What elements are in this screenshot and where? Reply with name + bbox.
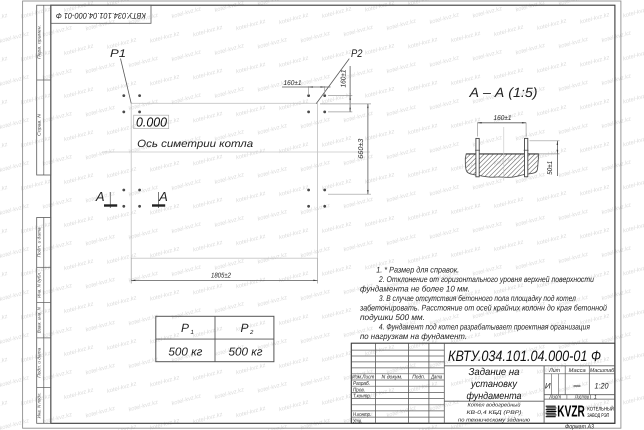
svg-text:kotel-kvz.kz: kotel-kvz.kz [214, 171, 245, 186]
svg-text:kotel-kvz.kz: kotel-kvz.kz [20, 6, 51, 21]
svg-text:kotel-kvz.kz: kotel-kvz.kz [579, 11, 610, 26]
svg-text:kotel-kvz.kz: kotel-kvz.kz [0, 245, 30, 260]
svg-text:kotel-kvz.kz: kotel-kvz.kz [192, 110, 223, 125]
svg-text:kotel-kvz.kz: kotel-kvz.kz [63, 387, 94, 402]
svg-text:kotel-kvz.kz: kotel-kvz.kz [278, 184, 309, 199]
svg-text:kotel-kvz.kz: kotel-kvz.kz [171, 264, 202, 279]
svg-text:kotel-kvz.kz: kotel-kvz.kz [63, 129, 94, 144]
svg-text:по техническому заданию: по техническому заданию [458, 418, 530, 424]
svg-text:P1: P1 [110, 48, 126, 60]
svg-text:ЗАВОД РЭП: ЗАВОД РЭП [587, 413, 609, 419]
svg-text:kotel-kvz.kz: kotel-kvz.kz [42, 325, 73, 340]
svg-text:kotel-kvz.kz: kotel-kvz.kz [0, 270, 8, 285]
svg-text:kotel-kvz.kz: kotel-kvz.kz [235, 104, 266, 119]
svg-text:kotel-kvz.kz: kotel-kvz.kz [450, 116, 481, 131]
svg-text:kotel-kvz.kz: kotel-kvz.kz [106, 251, 137, 266]
svg-text:kotel-kvz.kz: kotel-kvz.kz [0, 202, 30, 217]
svg-text:kotel-kvz.kz: kotel-kvz.kz [300, 116, 331, 131]
svg-text:kotel-kvz.kz: kotel-kvz.kz [20, 178, 51, 193]
svg-text:660±3: 660±3 [358, 139, 365, 159]
svg-text:kotel-kvz.kz: kotel-kvz.kz [106, 79, 137, 94]
svg-text:kotel-kvz.kz: kotel-kvz.kz [601, 288, 632, 303]
svg-text:kotel-kvz.kz: kotel-kvz.kz [0, 313, 8, 328]
svg-text:kotel-kvz.kz: kotel-kvz.kz [364, 42, 395, 57]
svg-text:kotel-kvz.kz: kotel-kvz.kz [257, 122, 288, 137]
svg-text:kotel-kvz.kz: kotel-kvz.kz [0, 356, 8, 371]
svg-text:А – А (1:5): А – А (1:5) [468, 85, 537, 100]
svg-text:kotel-kvz.kz: kotel-kvz.kz [257, 380, 288, 395]
svg-text:kotel-kvz.kz: kotel-kvz.kz [128, 399, 159, 414]
svg-text:kotel-kvz.kz: kotel-kvz.kz [257, 165, 288, 180]
svg-text:50±1: 50±1 [547, 161, 554, 175]
svg-text:КОТЕЛЬНЫЙ: КОТЕЛЬНЫЙ [587, 406, 614, 413]
svg-text:kotel-kvz.kz: kotel-kvz.kz [472, 220, 503, 235]
svg-text:kotel-kvz.kz: kotel-kvz.kz [42, 239, 73, 254]
svg-text:kotel-kvz.kz: kotel-kvz.kz [558, 79, 589, 94]
svg-text:kotel-kvz.kz: kotel-kvz.kz [386, 233, 417, 248]
svg-text:kotel-kvz.kz: kotel-kvz.kz [472, 5, 503, 20]
svg-text:kotel-kvz.kz: kotel-kvz.kz [558, 36, 589, 51]
svg-text:kotel-kvz.kz: kotel-kvz.kz [106, 294, 137, 309]
svg-text:kotel-kvz.kz: kotel-kvz.kz [42, 196, 73, 211]
svg-text:kotel-kvz.kz: kotel-kvz.kz [106, 165, 137, 180]
svg-text:kotel-kvz.kz: kotel-kvz.kz [300, 374, 331, 389]
svg-text:kotel-kvz.kz: kotel-kvz.kz [0, 30, 30, 45]
svg-text:Р: Р [181, 321, 189, 335]
svg-text:kotel-kvz.kz: kotel-kvz.kz [214, 85, 245, 100]
svg-text:kotel-kvz.kz: kotel-kvz.kz [558, 380, 589, 395]
svg-text:kotel-kvz.kz: kotel-kvz.kz [622, 48, 644, 63]
svg-text:1805±2: 1805±2 [211, 273, 231, 280]
svg-text:kotel-kvz.kz: kotel-kvz.kz [407, 122, 438, 137]
svg-text:kotel-kvz.kz: kotel-kvz.kz [536, 17, 567, 32]
svg-text:Инв. N подл.: Инв. N подл. [36, 392, 41, 418]
svg-text:kotel-kvz.kz: kotel-kvz.kz [106, 122, 137, 137]
svg-text:kotel-kvz.kz: kotel-kvz.kz [364, 171, 395, 186]
svg-text:0.000: 0.000 [136, 115, 168, 130]
svg-text:kotel-kvz.kz: kotel-kvz.kz [407, 208, 438, 223]
svg-text:1: 1 [594, 394, 597, 400]
svg-text:kotel-kvz.kz: kotel-kvz.kz [0, 55, 8, 70]
svg-text:KVZR: KVZR [557, 404, 585, 421]
svg-text:kotel-kvz.kz: kotel-kvz.kz [536, 103, 567, 118]
svg-text:kotel-kvz.kz: kotel-kvz.kz [622, 134, 644, 149]
svg-text:kotel-kvz.kz: kotel-kvz.kz [300, 288, 331, 303]
svg-text:kotel-kvz.kz: kotel-kvz.kz [42, 282, 73, 297]
svg-text:Масштаб: Масштаб [590, 367, 615, 374]
svg-text:kotel-kvz.kz: kotel-kvz.kz [343, 67, 374, 82]
svg-text:kotel-kvz.kz: kotel-kvz.kz [0, 374, 30, 389]
svg-text:160±1: 160±1 [340, 69, 347, 87]
svg-text:kotel-kvz.kz: kotel-kvz.kz [343, 196, 374, 211]
svg-text:kotel-kvz.kz: kotel-kvz.kz [321, 263, 352, 278]
svg-text:kotel-kvz.kz: kotel-kvz.kz [235, 276, 266, 291]
svg-text:kotel-kvz.kz: kotel-kvz.kz [300, 245, 331, 260]
svg-text:КВТУ.034.101.04.000-01 Ф: КВТУ.034.101.04.000-01 Ф [448, 348, 601, 365]
svg-text:kotel-kvz.kz: kotel-kvz.kz [300, 30, 331, 45]
svg-text:2: 2 [249, 329, 254, 336]
svg-text:kotel-kvz.kz: kotel-kvz.kz [450, 202, 481, 217]
svg-text:kotel-kvz.kz: kotel-kvz.kz [321, 5, 352, 20]
svg-text:kotel-kvz.kz: kotel-kvz.kz [429, 140, 460, 155]
svg-text:kotel-kvz.kz: kotel-kvz.kz [42, 24, 73, 39]
svg-text:kotel-kvz.kz: kotel-kvz.kz [515, 171, 546, 186]
svg-text:kotel-kvz.kz: kotel-kvz.kz [429, 54, 460, 69]
svg-text:kotel-kvz.kz: kotel-kvz.kz [622, 220, 644, 235]
svg-text:забетонировать. Расстояние от: забетонировать. Расстояние от осей крайн… [359, 304, 607, 313]
svg-text:kotel-kvz.kz: kotel-kvz.kz [601, 159, 632, 174]
svg-text:kotel-kvz.kz: kotel-kvz.kz [149, 245, 180, 260]
svg-text:Пров.: Пров. [353, 387, 365, 393]
svg-text:КВ-0,4 КБД (РВР): КВ-0,4 КБД (РВР) [467, 410, 522, 416]
svg-text:kotel-kvz.kz: kotel-kvz.kz [558, 251, 589, 266]
svg-text:Подп. и дата: Подп. и дата [36, 227, 41, 258]
svg-text:kotel-kvz.kz: kotel-kvz.kz [278, 399, 309, 414]
svg-text:2. Отклонение от горизонтально: 2. Отклонение от горизонтального уровня … [378, 275, 594, 284]
svg-text:kotel-kvz.kz: kotel-kvz.kz [63, 258, 94, 273]
svg-text:Изм.Лист: Изм.Лист [352, 374, 374, 380]
svg-text:kotel-kvz.kz: kotel-kvz.kz [128, 184, 159, 199]
svg-text:kotel-kvz.kz: kotel-kvz.kz [579, 183, 610, 198]
svg-text:kotel-kvz.kz: kotel-kvz.kz [579, 226, 610, 241]
svg-text:kotel-kvz.kz: kotel-kvz.kz [63, 86, 94, 101]
svg-text:kotel-kvz.kz: kotel-kvz.kz [321, 134, 352, 149]
svg-text:kotel-kvz.kz: kotel-kvz.kz [128, 270, 159, 285]
svg-text:kotel-kvz.kz: kotel-kvz.kz [0, 399, 8, 414]
svg-text:kotel-kvz.kz: kotel-kvz.kz [149, 159, 180, 174]
svg-text:kotel-kvz.kz: kotel-kvz.kz [171, 178, 202, 193]
svg-text:kotel-kvz.kz: kotel-kvz.kz [278, 356, 309, 371]
svg-text:kotel-kvz.kz: kotel-kvz.kz [429, 226, 460, 241]
svg-text:Р: Р [241, 321, 249, 335]
svg-text:kotel-kvz.kz: kotel-kvz.kz [235, 233, 266, 248]
svg-text:kotel-kvz.kz: kotel-kvz.kz [278, 12, 309, 27]
svg-text:kotel-kvz.kz: kotel-kvz.kz [0, 288, 30, 303]
svg-text:Котел водогрейный: Котел водогрейный [468, 403, 521, 409]
svg-text:kotel-kvz.kz: kotel-kvz.kz [63, 43, 94, 58]
svg-text:kotel-kvz.kz: kotel-kvz.kz [493, 196, 524, 211]
svg-text:Разраб.: Разраб. [353, 381, 370, 387]
svg-text:kotel-kvz.kz: kotel-kvz.kz [278, 227, 309, 242]
svg-text:kotel-kvz.kz: kotel-kvz.kz [558, 165, 589, 180]
svg-text:160±1: 160±1 [494, 115, 512, 122]
svg-text:kotel-kvz.kz: kotel-kvz.kz [235, 405, 266, 420]
svg-text:kotel-kvz.kz: kotel-kvz.kz [149, 331, 180, 346]
svg-text:kotel-kvz.kz: kotel-kvz.kz [450, 245, 481, 260]
svg-text:kotel-kvz.kz: kotel-kvz.kz [622, 91, 644, 106]
svg-text:kotel-kvz.kz: kotel-kvz.kz [171, 92, 202, 107]
svg-text:kotel-kvz.kz: kotel-kvz.kz [0, 12, 8, 27]
svg-text:kotel-kvz.kz: kotel-kvz.kz [192, 67, 223, 82]
svg-text:kotel-kvz.kz: kotel-kvz.kz [407, 165, 438, 180]
svg-text:Взам. инв. N: Взам. инв. N [36, 306, 41, 333]
svg-text:kotel-kvz.kz: kotel-kvz.kz [0, 116, 30, 131]
svg-text:kotel-kvz.kz: kotel-kvz.kz [386, 18, 417, 33]
svg-text:по нагрузкам на фундамент.: по нагрузкам на фундамент. [360, 332, 467, 341]
svg-text:1. * Размер для справок.: 1. * Размер для справок. [376, 266, 459, 275]
svg-text:kotel-kvz.kz: kotel-kvz.kz [601, 116, 632, 131]
svg-text:1: 1 [191, 329, 194, 336]
svg-text:Масса: Масса [569, 368, 586, 374]
svg-text:КВТУ.034.101.04.000-01 Ф: КВТУ.034.101.04.000-01 Ф [55, 11, 145, 20]
svg-text:kotel-kvz.kz: kotel-kvz.kz [407, 79, 438, 94]
svg-text:Инв. N дубл.: Инв. N дубл. [36, 272, 41, 298]
svg-text:kotel-kvz.kz: kotel-kvz.kz [192, 325, 223, 340]
svg-text:Лит: Лит [548, 368, 560, 374]
svg-text:kotel-kvz.kz: kotel-kvz.kz [149, 288, 180, 303]
svg-text:kotel-kvz.kz: kotel-kvz.kz [192, 368, 223, 383]
svg-text:kotel-kvz.kz: kotel-kvz.kz [171, 307, 202, 322]
svg-text:Перв. примен.: Перв. примен. [36, 25, 41, 59]
svg-text:kotel-kvz.kz: kotel-kvz.kz [85, 147, 116, 162]
svg-text:Дата: Дата [430, 374, 442, 380]
svg-text:kotel-kvz.kz: kotel-kvz.kz [579, 54, 610, 69]
svg-text:kotel-kvz.kz: kotel-kvz.kz [515, 0, 546, 14]
svg-text:установку: установку [470, 379, 518, 390]
svg-text:Ось симетрии котла: Ось симетрии котла [137, 138, 253, 150]
svg-text:kotel-kvz.kz: kotel-kvz.kz [321, 306, 352, 321]
svg-text:kotel-kvz.kz: kotel-kvz.kz [622, 177, 644, 192]
svg-text:1:20: 1:20 [595, 382, 609, 391]
svg-text:kotel-kvz.kz: kotel-kvz.kz [214, 300, 245, 315]
svg-text:kotel-kvz.kz: kotel-kvz.kz [386, 147, 417, 162]
svg-text:kotel-kvz.kz: kotel-kvz.kz [493, 239, 524, 254]
svg-text:kotel-kvz.kz: kotel-kvz.kz [579, 97, 610, 112]
svg-text:kotel-kvz.kz: kotel-kvz.kz [128, 55, 159, 70]
svg-text:kotel-kvz.kz: kotel-kvz.kz [536, 60, 567, 75]
svg-text:kotel-kvz.kz: kotel-kvz.kz [278, 270, 309, 285]
svg-text:kotel-kvz.kz: kotel-kvz.kz [493, 24, 524, 39]
svg-text:kotel-kvz.kz: kotel-kvz.kz [300, 202, 331, 217]
svg-text:kotel-kvz.kz: kotel-kvz.kz [622, 263, 644, 278]
svg-text:kotel-kvz.kz: kotel-kvz.kz [343, 24, 374, 39]
svg-text:kotel-kvz.kz: kotel-kvz.kz [171, 221, 202, 236]
svg-text:подушки 500 мм.: подушки 500 мм. [360, 313, 425, 322]
svg-text:фундамента: фундамента [467, 391, 522, 402]
svg-text:kotel-kvz.kz: kotel-kvz.kz [472, 177, 503, 192]
svg-text:kotel-kvz.kz: kotel-kvz.kz [192, 239, 223, 254]
svg-text:kotel-kvz.kz: kotel-kvz.kz [321, 392, 352, 407]
svg-text:Н.контр.: Н.контр. [353, 412, 371, 418]
svg-text:kotel-kvz.kz: kotel-kvz.kz [171, 393, 202, 408]
svg-text:kotel-kvz.kz: kotel-kvz.kz [235, 61, 266, 76]
svg-text:kotel-kvz.kz: kotel-kvz.kz [128, 356, 159, 371]
svg-text:kotel-kvz.kz: kotel-kvz.kz [300, 73, 331, 88]
svg-text:kotel-kvz.kz: kotel-kvz.kz [63, 301, 94, 316]
svg-text:kotel-kvz.kz: kotel-kvz.kz [300, 159, 331, 174]
svg-text:kotel-kvz.kz: kotel-kvz.kz [278, 55, 309, 70]
svg-text:А: А [158, 189, 168, 204]
svg-text:Подп.: Подп. [412, 374, 425, 380]
svg-text:Справ. N: Справ. N [36, 113, 41, 136]
svg-text:kotel-kvz.kz: kotel-kvz.kz [85, 319, 116, 334]
svg-text:kotel-kvz.kz: kotel-kvz.kz [386, 190, 417, 205]
svg-text:kotel-kvz.kz: kotel-kvz.kz [622, 349, 644, 364]
svg-text:kotel-kvz.kz: kotel-kvz.kz [42, 67, 73, 82]
svg-text:kotel-kvz.kz: kotel-kvz.kz [106, 208, 137, 223]
svg-text:kotel-kvz.kz: kotel-kvz.kz [85, 405, 116, 420]
svg-text:kotel-kvz.kz: kotel-kvz.kz [192, 282, 223, 297]
svg-text:kotel-kvz.kz: kotel-kvz.kz [622, 306, 644, 321]
svg-text:kotel-kvz.kz: kotel-kvz.kz [429, 11, 460, 26]
svg-text:kotel-kvz.kz: kotel-kvz.kz [407, 423, 438, 430]
svg-text:kotel-kvz.kz: kotel-kvz.kz [407, 251, 438, 266]
svg-text:Подп. и дата: Подп. и дата [36, 347, 41, 378]
svg-text:kotel-kvz.kz: kotel-kvz.kz [386, 61, 417, 76]
svg-text:kotel-kvz.kz: kotel-kvz.kz [429, 183, 460, 198]
svg-text:Листов: Листов [574, 394, 589, 400]
svg-text:kotel-kvz.kz: kotel-kvz.kz [0, 184, 8, 199]
svg-text:kotel-kvz.kz: kotel-kvz.kz [300, 331, 331, 346]
svg-text:kotel-kvz.kz: kotel-kvz.kz [257, 36, 288, 51]
svg-text:kotel-kvz.kz: kotel-kvz.kz [364, 214, 395, 229]
svg-text:kotel-kvz.kz: kotel-kvz.kz [515, 214, 546, 229]
svg-text:kotel-kvz.kz: kotel-kvz.kz [257, 294, 288, 309]
svg-text:kotel-kvz.kz: kotel-kvz.kz [622, 392, 644, 407]
svg-text:kotel-kvz.kz: kotel-kvz.kz [214, 0, 245, 14]
svg-text:P2: P2 [351, 48, 363, 60]
svg-text:kotel-kvz.kz: kotel-kvz.kz [493, 67, 524, 82]
svg-text:kotel-kvz.kz: kotel-kvz.kz [515, 128, 546, 143]
svg-text:kotel-kvz.kz: kotel-kvz.kz [128, 98, 159, 113]
svg-text:kotel-kvz.kz: kotel-kvz.kz [601, 245, 632, 260]
svg-text:N докум.: N докум. [382, 374, 403, 380]
svg-text:kotel-kvz.kz: kotel-kvz.kz [0, 331, 30, 346]
svg-text:kotel-kvz.kz: kotel-kvz.kz [472, 48, 503, 63]
svg-text:фундамента не более 10 мм.: фундамента не более 10 мм. [360, 285, 470, 294]
svg-text:kotel-kvz.kz: kotel-kvz.kz [0, 73, 30, 88]
svg-text:kotel-kvz.kz: kotel-kvz.kz [42, 110, 73, 125]
svg-text:kotel-kvz.kz: kotel-kvz.kz [85, 362, 116, 377]
svg-text:kotel-kvz.kz: kotel-kvz.kz [622, 5, 644, 20]
svg-text:kotel-kvz.kz: kotel-kvz.kz [192, 196, 223, 211]
svg-text:kotel-kvz.kz: kotel-kvz.kz [235, 190, 266, 205]
svg-text:kotel-kvz.kz: kotel-kvz.kz [214, 386, 245, 401]
svg-text:kotel-kvz.kz: kotel-kvz.kz [321, 349, 352, 364]
svg-text:kotel-kvz.kz: kotel-kvz.kz [407, 36, 438, 51]
svg-text:kotel-kvz.kz: kotel-kvz.kz [536, 232, 567, 247]
svg-text:kotel-kvz.kz: kotel-kvz.kz [450, 30, 481, 45]
svg-text:kotel-kvz.kz: kotel-kvz.kz [106, 337, 137, 352]
svg-text:kotel-kvz.kz: kotel-kvz.kz [85, 61, 116, 76]
svg-text:kotel-kvz.kz: kotel-kvz.kz [214, 42, 245, 57]
svg-text:kotel-kvz.kz: kotel-kvz.kz [20, 92, 51, 107]
svg-text:Утв.: Утв. [352, 418, 362, 424]
svg-text:500 кг: 500 кг [229, 347, 263, 359]
svg-text:Формат А3: Формат А3 [565, 424, 594, 430]
svg-text:kotel-kvz.kz: kotel-kvz.kz [601, 30, 632, 45]
svg-text:kotel-kvz.kz: kotel-kvz.kz [63, 215, 94, 230]
svg-text:kotel-kvz.kz: kotel-kvz.kz [128, 227, 159, 242]
svg-text:А: А [95, 189, 105, 204]
svg-text:kotel-kvz.kz: kotel-kvz.kz [364, 128, 395, 143]
svg-text:Т.контр.: Т.контр. [353, 394, 371, 400]
svg-text:kotel-kvz.kz: kotel-kvz.kz [235, 362, 266, 377]
svg-text:kotel-kvz.kz: kotel-kvz.kz [558, 208, 589, 223]
svg-text:kotel-kvz.kz: kotel-kvz.kz [278, 141, 309, 156]
svg-text:kotel-kvz.kz: kotel-kvz.kz [128, 313, 159, 328]
svg-text:3. В случае отсутствия бетонно: 3. В случае отсутствия бетонного пола пл… [379, 294, 576, 303]
svg-text:kotel-kvz.kz: kotel-kvz.kz [149, 30, 180, 45]
svg-text:kotel-kvz.kz: kotel-kvz.kz [106, 423, 137, 430]
svg-text:kotel-kvz.kz: kotel-kvz.kz [235, 18, 266, 33]
svg-text:kotel-kvz.kz: kotel-kvz.kz [257, 423, 288, 430]
svg-text:kotel-kvz.kz: kotel-kvz.kz [171, 49, 202, 64]
svg-text:kotel-kvz.kz: kotel-kvz.kz [386, 104, 417, 119]
svg-text:kotel-kvz.kz: kotel-kvz.kz [601, 202, 632, 217]
svg-text:kotel-kvz.kz: kotel-kvz.kz [515, 42, 546, 57]
svg-text:kotel-kvz.kz: kotel-kvz.kz [42, 368, 73, 383]
svg-text:kotel-kvz.kz: kotel-kvz.kz [85, 276, 116, 291]
svg-text:kotel-kvz.kz: kotel-kvz.kz [536, 189, 567, 204]
svg-text:500 кг: 500 кг [168, 347, 202, 359]
svg-text:4. Фундамент под котел разраба: 4. Фундамент под котел разрабатывает про… [379, 322, 591, 331]
svg-text:kotel-kvz.kz: kotel-kvz.kz [85, 233, 116, 248]
svg-text:kotel-kvz.kz: kotel-kvz.kz [192, 153, 223, 168]
svg-text:kotel-kvz.kz: kotel-kvz.kz [0, 98, 8, 113]
svg-text:kotel-kvz.kz: kotel-kvz.kz [214, 257, 245, 272]
svg-text:kotel-kvz.kz: kotel-kvz.kz [63, 172, 94, 187]
svg-text:kotel-kvz.kz: kotel-kvz.kz [558, 122, 589, 137]
svg-text:kotel-kvz.kz: kotel-kvz.kz [364, 0, 395, 14]
svg-text:160±1: 160±1 [284, 80, 302, 87]
svg-text:kotel-kvz.kz: kotel-kvz.kz [0, 159, 30, 174]
svg-text:kotel-kvz.kz: kotel-kvz.kz [515, 257, 546, 272]
svg-text:Лист: Лист [548, 394, 561, 400]
svg-text:kotel-kvz.kz: kotel-kvz.kz [364, 85, 395, 100]
svg-text:kotel-kvz.kz: kotel-kvz.kz [192, 24, 223, 39]
svg-text:kotel-kvz.kz: kotel-kvz.kz [106, 380, 137, 395]
svg-text:kotel-kvz.kz: kotel-kvz.kz [257, 208, 288, 223]
svg-text:kotel-kvz.kz: kotel-kvz.kz [63, 344, 94, 359]
svg-text:kotel-kvz.kz: kotel-kvz.kz [214, 214, 245, 229]
svg-text:Задание на: Задание на [469, 367, 520, 378]
svg-text:kotel-kvz.kz: kotel-kvz.kz [343, 239, 374, 254]
svg-text:kotel-kvz.kz: kotel-kvz.kz [601, 73, 632, 88]
svg-text:kotel-kvz.kz: kotel-kvz.kz [278, 98, 309, 113]
svg-text:kotel-kvz.kz: kotel-kvz.kz [429, 97, 460, 112]
svg-text:kotel-kvz.kz: kotel-kvz.kz [0, 141, 8, 156]
svg-text:kotel-kvz.kz: kotel-kvz.kz [149, 73, 180, 88]
svg-text:kotel-kvz.kz: kotel-kvz.kz [321, 220, 352, 235]
svg-text:kotel-kvz.kz: kotel-kvz.kz [0, 227, 8, 242]
svg-text:И: И [545, 382, 551, 391]
svg-text:kotel-kvz.kz: kotel-kvz.kz [171, 6, 202, 21]
svg-text:kotel-kvz.kz: kotel-kvz.kz [42, 153, 73, 168]
svg-text:kotel-kvz.kz: kotel-kvz.kz [579, 140, 610, 155]
svg-text:kotel-kvz.kz: kotel-kvz.kz [149, 374, 180, 389]
svg-text:kotel-kvz.kz: kotel-kvz.kz [85, 104, 116, 119]
svg-text:kotel-kvz.kz: kotel-kvz.kz [278, 313, 309, 328]
